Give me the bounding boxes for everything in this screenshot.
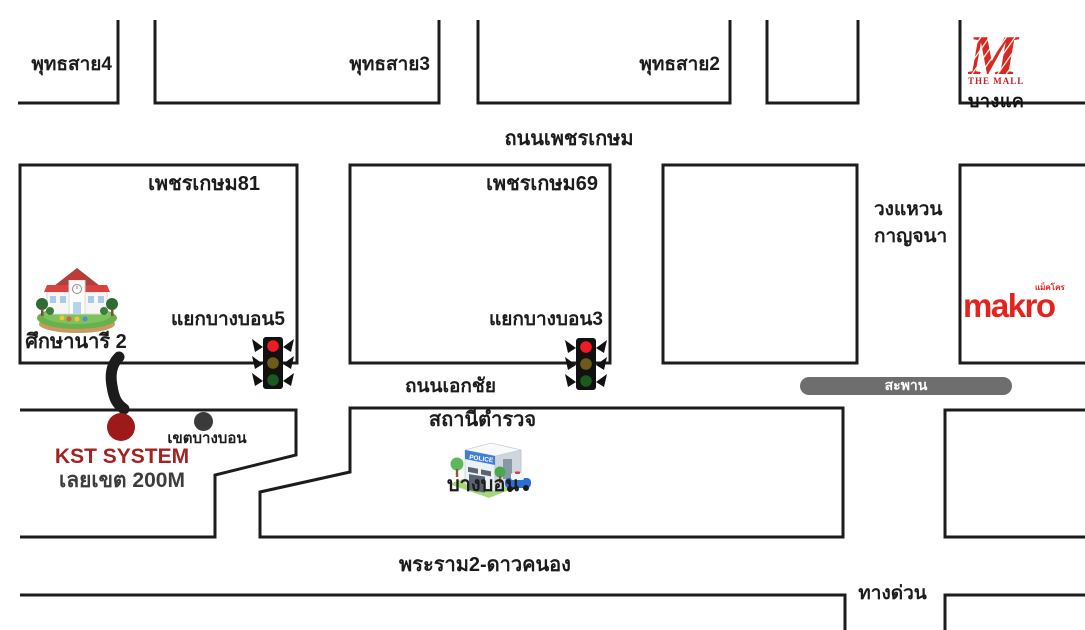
school-icon <box>36 264 118 334</box>
expressway-edge <box>945 595 1085 630</box>
the-mall-branch-label: บางแค <box>968 86 1046 115</box>
kanchana-line2: กาญจนา <box>874 223 964 250</box>
bridge-label: สะพาน <box>885 375 928 397</box>
makro-thai-label: แม็คโคร <box>1035 281 1065 294</box>
block-label-phetkasem69: เพชรเกษม69 <box>465 173 598 196</box>
the-mall-logo: M THE MALL บางแค <box>968 30 1046 115</box>
destination-note: เลยเขต 200M <box>47 469 197 493</box>
block-outline-low-right <box>945 410 1085 537</box>
kanchana-line1: วงแหวน <box>874 196 964 223</box>
makro-wordmark: makro <box>963 287 1083 325</box>
bridge-badge: สะพาน <box>800 377 1012 395</box>
block-outline-police <box>260 408 843 537</box>
landmark-label-police-station: สถานีตำรวจ <box>420 409 545 432</box>
rama2-road-edge <box>20 595 845 630</box>
intersection-label-bangbon5: แยกบางบอน5 <box>168 309 288 331</box>
block-outline-mid3 <box>663 165 857 363</box>
direction-map: พุทธสาย4 พุทธสาย3 พุทธสาย2 ถนนเพชรเกษม เ… <box>0 0 1085 630</box>
block-outline-makro <box>960 165 1085 363</box>
landmark-label-school: ศึกษานารี 2 <box>21 331 131 354</box>
road-label-expressway: ทางด่วน <box>850 583 935 605</box>
svg-text:M: M <box>968 30 1020 78</box>
road-label-ekachai: ถนนเอกชัย <box>393 376 508 398</box>
traffic-light-icon-bangbon3 <box>564 338 608 390</box>
road-label-phutthasai2: พุทธสาย2 <box>620 54 720 76</box>
traffic-light-icon-bangbon5 <box>251 337 295 389</box>
road-label-kanchana-ring: วงแหวน กาญจนา <box>874 196 964 250</box>
road-label-phutthasai4: พุทธสาย4 <box>20 54 112 76</box>
road-label-phutthasai3: พุทธสาย3 <box>330 54 430 76</box>
destination-name: KST SYSTEM <box>47 445 197 469</box>
block-label-phetkasem81: เพชรเกษม81 <box>125 173 260 196</box>
road-label-rama2: พระราม2-ดาวคนอง <box>385 554 585 577</box>
road-label-phetkasem: ถนนเพชรเกษม <box>469 128 669 151</box>
kst-location-dot <box>107 413 135 441</box>
landmark-label-police-bangbon: บางบอน <box>423 474 543 497</box>
district-office-dot <box>194 412 213 431</box>
the-mall-wordmark: THE MALL <box>968 76 1046 86</box>
makro-logo: แม็คโคร makro <box>963 281 1083 325</box>
the-mall-m-icon: M <box>968 30 1034 78</box>
block-outline-top4 <box>767 20 858 103</box>
route-line <box>111 357 124 409</box>
intersection-label-bangbon3: แยกบางบอน3 <box>486 309 606 331</box>
